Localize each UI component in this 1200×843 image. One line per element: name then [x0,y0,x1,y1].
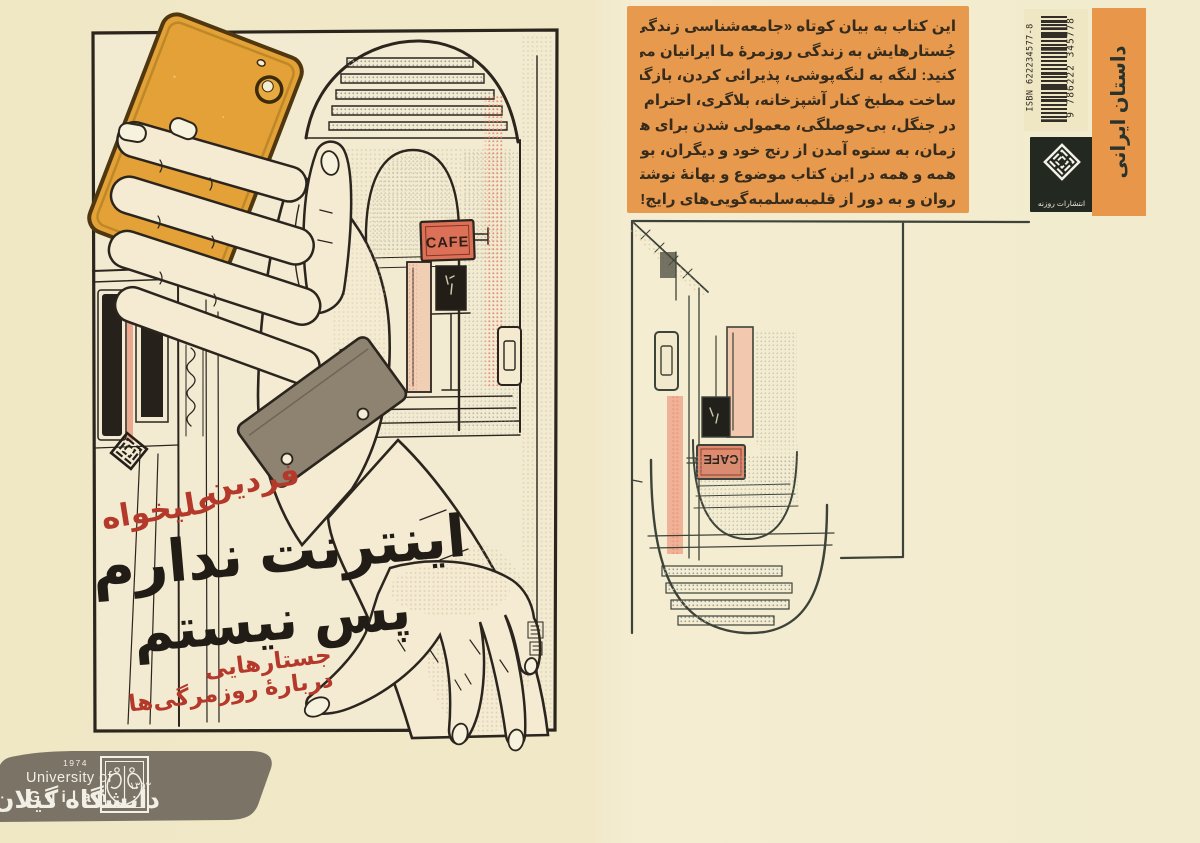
barcode-bars-icon [1041,16,1067,124]
book-cover-scan: CAFE [0,0,1200,843]
banner-year-en: 1974 [63,758,88,768]
publisher-logo-icon [108,430,150,472]
isbn-barcode: ISBN 622234577-8 9 786222 345778 [1024,9,1088,131]
cafe-sign: CAFE [420,220,474,261]
publisher-name: انتشارات روزنه [1030,199,1093,208]
publisher-block: انتشارات روزنه [1030,137,1093,212]
category-strip: داستان ایرانی [1092,8,1146,216]
university-of-guilan-banner: 1974 University of Guilan ۱۳۵۳ دانشگاه گ… [0,743,320,843]
blurb-line: جُستارهایش به زندگی روزمرهٔ ما ایرانیان … [640,40,956,65]
cafe-sign-text: CAFE [426,234,470,252]
back-cover-illustration: CAFE [620,210,1040,670]
category-strip-text: داستان ایرانی [1107,45,1131,178]
blurb-line: ساخت مطبخ کنار آشپزخانه، بلاگری، احترام … [640,89,956,114]
front-cover-illustration: CAFE [0,0,620,843]
blurb-line: روان و به دور از قلمبه‌سلمبه‌گویی‌های را… [640,188,956,213]
cuff-button [358,409,369,420]
blurb-line: همه و همه در این کتاب موضوع و بهانهٔ نوش… [640,163,956,188]
barcode-number: 9 786222 345778 [1066,10,1077,126]
blurb-line: زمان، به ستوه آمدن از رنج خود و دیگران، … [640,139,956,164]
banner-university-fa: دانشگاه گیلان [0,785,160,814]
light-switch [498,327,521,385]
isbn-label: ISBN 622234577-8 [1026,10,1037,126]
back-cover-blurb: این کتاب به بیان کوتاه «جامعه‌شناسی زندگ… [627,6,969,213]
blurb-line: این کتاب به بیان کوتاه «جامعه‌شناسی زندگ… [640,15,956,40]
blurb-line: کنید: لنگه به لنگه‌پوشی، پذیرائی کردن، ب… [640,64,956,89]
banner-university-en-line1: University of [26,770,113,786]
publisher-logo-icon [1042,142,1082,182]
blurb-line: در جنگل، بی‌حوصلگی، معمولی شدن برای هم، … [640,114,956,139]
